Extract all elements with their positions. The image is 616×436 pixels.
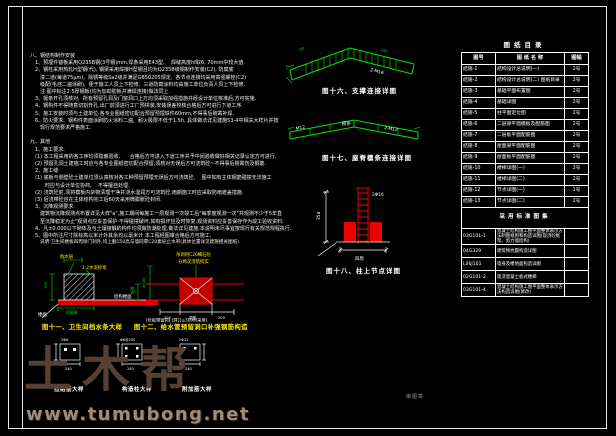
sheet-size: 2号 — [565, 131, 589, 142]
review-stamp-text: 审图章 — [406, 393, 424, 400]
cad-drawing-canvas: 八、钢结构制作安装 1、预埋件锚板采用Q235B钢(3号钢)mm,焊条采用E43… — [0, 0, 616, 436]
sheet-size: 2号 — [565, 87, 589, 98]
fig12-caption: 图十二、给水管预留洞口补强钢筋构造 — [134, 322, 248, 331]
sheet-name: 基础详图 — [496, 98, 565, 109]
dim-label: 200 — [218, 316, 226, 320]
sheet-size: 2号 — [565, 153, 589, 164]
sheet-number: 结施-13 — [462, 197, 496, 208]
grout-note-line1: 吊洞用C20细石砼 — [176, 251, 212, 258]
bolt-label: 2-M12 — [384, 125, 399, 133]
atlas-row: 04G329 建筑物抗震构造详图 — [462, 245, 589, 258]
dim-label: 35d — [316, 211, 322, 220]
table-row: 结施-7 二层板平面配筋图 2号 — [462, 131, 589, 142]
sheet-name: 结构设计总说明(二) 图纸目录 — [496, 76, 565, 87]
drawing-index-title: 图纸目录 — [461, 39, 588, 52]
sheet-size: 2号 — [565, 164, 589, 175]
note-line: 5、施工安装时须与土建单位·各专业图纸密切配合预留预埋铁件60mm,不得事后剔凿… — [30, 111, 286, 118]
general-notes-block: 八、钢结构制作安装 1、预埋件锚板采用Q235B钢(3号钢)mm,焊条采用E43… — [30, 53, 286, 240]
fig17-caption: 图十七、屋脊檩条连接详图 — [322, 152, 412, 162]
dim-label: 同墙厚 — [66, 310, 78, 315]
anchor-block — [370, 222, 382, 242]
rebar-label: 2Φ16 — [372, 192, 384, 198]
atlas-size — [565, 229, 589, 245]
sheet-name: 结构设计总说明(一) — [496, 65, 565, 76]
table-row: 结施-6 二层梁平面模板及配筋图 2号 — [462, 120, 589, 131]
dim-label: 40 — [299, 45, 306, 52]
col-header-size: 图幅 — [565, 53, 589, 65]
fig16-caption: 图十六、支撑连接详图 — [322, 85, 397, 95]
table-row: 结施-10 楼梯详图(一) 2号 — [462, 164, 589, 175]
waterproof-label: 防水层 — [60, 253, 74, 260]
drawing-index: 图纸目录 图号 图 纸 名 称 图幅 结施-1 结构设计总说明(一) 2号 — [461, 39, 588, 297]
note-line: (2) 预留孔洞土建施工时应与各专业图纸密切配合预留,须核对无误后方可浇筑砼~不… — [30, 161, 286, 168]
sheet-size: 2号 — [565, 120, 589, 131]
table-row: 结施-3 基础平面布置图 2号 — [462, 87, 589, 98]
atlas-section-title: 采用标准图集 — [462, 208, 589, 229]
note-line: 1、施工要求: — [30, 147, 286, 154]
col-header-number: 图号 — [462, 53, 496, 65]
sheet-number: 结施-3 — [462, 87, 496, 98]
sheet-size: 2号 — [565, 109, 589, 120]
table-row: 结施-8 屋面梁平面配筋图 2号 — [462, 142, 589, 153]
sheet-size: 2号 — [565, 76, 589, 87]
sheet-name: 二层板平面配筋图 — [496, 131, 565, 142]
table-row: 结施-9 屋面板平面配筋图 2号 — [462, 153, 589, 164]
watermark-brand: 土木帮 — [24, 344, 198, 397]
table-row: 结施-1 结构设计总说明(一) 2号 — [462, 65, 589, 76]
note-line: 现行规范要求严格施工. — [30, 125, 286, 132]
sheet-size: 2号 — [565, 98, 589, 109]
sheet-number: 结施-12 — [462, 186, 496, 197]
dim-label: 150 — [43, 281, 48, 289]
table-row: 结施-12 节点详图(一) 1号 — [462, 186, 589, 197]
waterstop-and-opening-details: 防水层 1:2水泥砂浆 150 ≥300 结构楼面 同墙厚 楼面 吊洞用C20细… — [38, 246, 270, 322]
table-row: 结施-11 楼梯详图(二) 2号 — [462, 175, 589, 186]
atlas-name: 混凝土结构施工图平面整体表示方法构造详图(修改) — [496, 284, 565, 297]
floor-slab — [58, 300, 158, 305]
dim-label: 60 — [286, 64, 290, 71]
sheet-size: 2号 — [565, 142, 589, 153]
atlas-row: 03G101-4 混凝土结构施工图平面整体表示方法构造详图(修改) — [462, 284, 589, 297]
drawing-frame-binding-line — [22, 6, 23, 428]
sheet-number: 结施-9 — [462, 153, 496, 164]
atlas-section-header: 采用标准图集 — [462, 208, 589, 229]
sheet-name: 节点详图(一) — [496, 186, 565, 197]
dim-label: 四周 — [355, 256, 364, 262]
sheet-name: 二层梁平面模板及配筋图 — [496, 120, 565, 131]
sheet-name: 柱平面定位图 — [496, 109, 565, 120]
sheet-name: 楼梯详图(一) — [496, 164, 565, 175]
drawing-index-table: 图号 图 纸 名 称 图幅 结施-1 结构设计总说明(一) 2号 结施-2 结 — [461, 52, 589, 297]
note-line: 至沉降稳定为止"观测点应妥善保护·不得碰撞破坏,如有损坏应及时恢复,观测资料应妥… — [30, 219, 286, 226]
atlas-code: L06J101 — [462, 258, 496, 271]
note-line: 时应与设计单位协商, 不得擅自处理. — [30, 183, 286, 190]
fig18-caption: 图十八、柱上节点详图 — [326, 265, 401, 275]
grout-note-line2: 分两次浇筑捣实 — [178, 258, 209, 265]
fig11-caption: 图十一、卫生间挡水条大样 — [42, 322, 122, 331]
sheet-number: 结施-2 — [462, 76, 496, 87]
sheet-name: 屋面梁平面配筋图 — [496, 142, 565, 153]
atlas-size — [565, 245, 589, 258]
bolt-label: 2-M16 — [370, 67, 385, 76]
note-line: 6、防火要求: 钢构件表面涂刷防火涂料二遍, 耐火极限不低于1.5h, 具体做法… — [30, 118, 286, 125]
atlas-code: 03G101-4 — [462, 284, 496, 297]
bolt-label: M12 — [295, 124, 305, 132]
table-row: 结施-4 基础详图 2号 — [462, 98, 589, 109]
table-header-row: 图号 图 纸 名 称 图幅 — [462, 53, 589, 65]
sheet-number: 结施-6 — [462, 120, 496, 131]
column-base-detail: 2Φ16 35d 四周 — [312, 186, 412, 264]
sheet-number: 结施-7 — [462, 131, 496, 142]
table-row: 结施-5 柱平面定位图 2号 — [462, 109, 589, 120]
note-line: 建筑物沉降观测点布置详见大样"a",施工期间每施工一层观测一次竣工后"每季度观测… — [30, 211, 286, 218]
atlas-code: 03G101-1 — [462, 229, 496, 245]
note-line: (1) 本工程采用的各工序均须隐蔽验收, 合格后方可进入下道工序并予中间验收做好… — [30, 154, 286, 161]
sheet-name: 基础平面布置图 — [496, 87, 565, 98]
atlas-name: 现浇混凝土板式楼梯 — [496, 271, 565, 284]
note-line — [30, 132, 286, 139]
note-line: (2) 浇筑砼前,须将模板内杂物清理干净并浇水湿润方可浇筑砼,雨期施工时应采取防… — [30, 190, 286, 197]
note-line: 九、其他 — [30, 139, 286, 146]
note-line: 4、凡±0.000以下砌体及与土壤接触的构件均须做防潮处理,做法详见建施,本说明… — [30, 226, 286, 233]
sheet-number: 结施-10 — [462, 164, 496, 175]
atlas-size — [565, 271, 589, 284]
note-line: 漆二道(每道75μm), 除锈等级Sa2级并满足GB50205规定, 各节点连接… — [30, 75, 286, 82]
atlas-row: 02G101-2 现浇混凝土板式楼梯 — [462, 271, 589, 284]
sheet-size: 1号 — [565, 186, 589, 197]
atlas-name: 建筑物抗震构造详图 — [496, 245, 565, 258]
atlas-size — [565, 258, 589, 271]
mortar-label: 1:2水泥砂浆 — [82, 264, 107, 271]
sheet-number: 结施-8 — [462, 142, 496, 153]
floor-label: 楼面 — [38, 311, 47, 318]
purlin-label: 檩条 — [342, 120, 351, 127]
detail-note-line: 说明:卫生间楼板四周除门洞外,均上翻150高与墙同厚C20素砼止水带(具体位置详… — [40, 239, 240, 245]
truss-connection-diagram: 40 240 60 2-M16 — [286, 40, 418, 90]
sheet-number: 结施-5 — [462, 109, 496, 120]
atlas-code: 02G101-2 — [462, 271, 496, 284]
anchor-block — [344, 222, 356, 242]
note-line: 级配(毛坯二遍涂刷), 便于施工人员上下检修, 三道防腐涂料均由施工单位负责人员… — [30, 82, 286, 89]
sheet-name: 楼梯详图(二) — [496, 175, 565, 186]
note-line: (1) 底板与侧壁砼土建单位须认真核对各工种预留预埋无误后方可浇筑砼, 图中如有… — [30, 175, 286, 182]
atlas-name: 墙身及楼地面构造详图 — [496, 258, 565, 271]
atlas-row: 03G101-1 混凝土结构施工图平面整体表示方法制图规则和构造详图(现浇砼框架… — [462, 229, 589, 245]
sheet-name: 节点详图(二) — [496, 197, 565, 208]
col-header-name: 图 纸 名 称 — [496, 53, 565, 65]
sheet-number: 结施-1 — [462, 65, 496, 76]
sheet-size: 2号 — [565, 175, 589, 186]
atlas-size — [565, 284, 589, 297]
atlas-row: L06J101 墙身及楼地面构造详图 — [462, 258, 589, 271]
sheet-name: 屋面板平面配筋图 — [496, 153, 565, 164]
ridge-purlin-diagram: M12 檩条 2-M12 — [286, 114, 422, 152]
note-line: 2、钢柱采用热轧H型钢(代), 钢梁采用焊接H型钢且均为Q235B级钢制作安装(… — [30, 67, 286, 74]
dim-label: 板厚 — [130, 286, 135, 294]
table-row: 结施-2 结构设计总说明(二) 图纸目录 2号 — [462, 76, 589, 87]
table-row: 结施-13 节点详图(二) 2号 — [462, 197, 589, 208]
atlas-code: 04G329 — [462, 245, 496, 258]
dim-label: ≥300 — [141, 277, 146, 288]
note-line: 4、钢构件不得随意切割开孔,出厂前须进行工厂预拼装,安装误差校核合格后方可进行下… — [30, 103, 286, 110]
atlas-name: 混凝土结构施工图平面整体表示方法制图规则和构造详图(现浇砼框架、剪力墙结构) — [496, 229, 565, 245]
sheet-number: 结施-4 — [462, 98, 496, 109]
sheet-size: 2号 — [565, 65, 589, 76]
watermark-url: www.tumubong.net — [26, 404, 250, 425]
hatched-curb-section — [64, 274, 94, 300]
sheet-number: 结施-11 — [462, 175, 496, 186]
dim-label: 240 — [380, 47, 389, 54]
sheet-size: 2号 — [565, 197, 589, 208]
